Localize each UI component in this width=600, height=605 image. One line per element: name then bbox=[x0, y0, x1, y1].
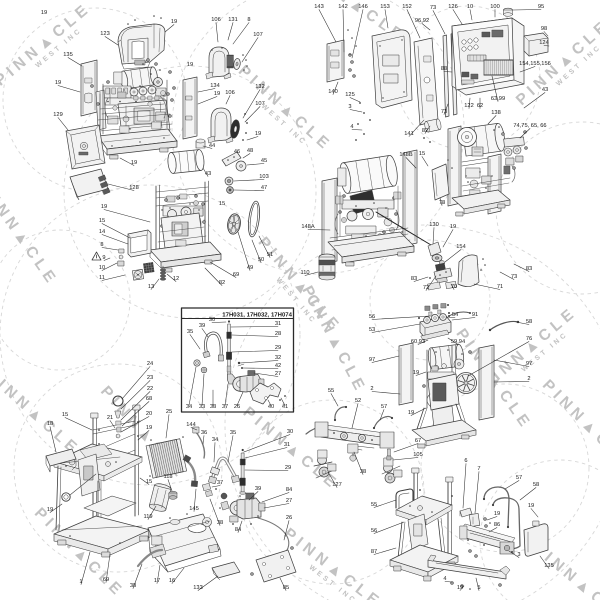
svg-text:3: 3 bbox=[348, 104, 351, 110]
svg-text:30: 30 bbox=[209, 317, 215, 323]
svg-text:37: 37 bbox=[222, 404, 228, 410]
svg-text:107: 107 bbox=[255, 101, 265, 107]
svg-text:22: 22 bbox=[147, 386, 153, 392]
svg-text:87: 87 bbox=[371, 549, 377, 555]
svg-text:28: 28 bbox=[275, 331, 281, 337]
svg-text:145: 145 bbox=[189, 506, 199, 512]
svg-text:84: 84 bbox=[286, 487, 292, 493]
svg-text:19: 19 bbox=[47, 507, 53, 513]
svg-text:57: 57 bbox=[381, 404, 387, 410]
svg-text:60,93: 60,93 bbox=[411, 339, 425, 345]
svg-text:9: 9 bbox=[102, 255, 105, 261]
svg-text:85: 85 bbox=[283, 585, 289, 591]
svg-text:8: 8 bbox=[100, 242, 103, 248]
svg-text:45: 45 bbox=[261, 158, 267, 164]
svg-text:42: 42 bbox=[275, 363, 281, 369]
svg-text:4: 4 bbox=[350, 124, 353, 130]
svg-text:31: 31 bbox=[284, 442, 290, 448]
svg-text:41: 41 bbox=[282, 404, 288, 410]
svg-text:86: 86 bbox=[494, 522, 500, 528]
svg-text:96,92: 96,92 bbox=[415, 18, 429, 24]
svg-text:38: 38 bbox=[217, 520, 223, 526]
svg-text:106: 106 bbox=[225, 90, 235, 96]
svg-text:123: 123 bbox=[100, 31, 110, 37]
svg-text:153: 153 bbox=[380, 4, 390, 10]
svg-text:24: 24 bbox=[147, 361, 153, 367]
svg-text:25: 25 bbox=[166, 409, 172, 415]
svg-text:40: 40 bbox=[268, 404, 274, 410]
svg-text:43: 43 bbox=[205, 171, 211, 177]
svg-text:58: 58 bbox=[533, 482, 539, 488]
svg-text:39: 39 bbox=[255, 486, 261, 492]
svg-text:72: 72 bbox=[423, 285, 429, 291]
svg-text:37: 37 bbox=[217, 480, 223, 486]
svg-text:83: 83 bbox=[411, 276, 417, 282]
svg-text:69: 69 bbox=[233, 272, 239, 278]
svg-text:142: 142 bbox=[338, 4, 348, 10]
svg-text:95: 95 bbox=[538, 4, 544, 10]
svg-text:141: 141 bbox=[404, 131, 414, 137]
svg-text:19: 19 bbox=[450, 224, 456, 230]
svg-text:7: 7 bbox=[477, 466, 480, 472]
svg-text:91: 91 bbox=[472, 312, 478, 318]
svg-text:15: 15 bbox=[146, 479, 152, 485]
svg-text:19: 19 bbox=[187, 62, 193, 68]
svg-text:17H031, 17H032, 17H074: 17H031, 17H032, 17H074 bbox=[222, 312, 292, 318]
svg-text:152: 152 bbox=[402, 4, 412, 10]
svg-text:124: 124 bbox=[539, 40, 549, 46]
svg-text:19: 19 bbox=[255, 131, 261, 137]
svg-text:43: 43 bbox=[542, 87, 548, 93]
svg-text:46: 46 bbox=[234, 149, 240, 155]
svg-text:48: 48 bbox=[247, 148, 253, 154]
svg-text:73: 73 bbox=[511, 274, 517, 280]
svg-text:19: 19 bbox=[101, 204, 107, 210]
svg-text:50: 50 bbox=[258, 257, 264, 263]
svg-text:19: 19 bbox=[214, 91, 220, 97]
svg-text:146: 146 bbox=[358, 4, 368, 10]
svg-text:34: 34 bbox=[212, 437, 218, 443]
svg-text:15: 15 bbox=[219, 201, 225, 207]
svg-text:27: 27 bbox=[275, 371, 281, 377]
svg-text:4: 4 bbox=[443, 576, 446, 582]
svg-text:88: 88 bbox=[441, 66, 447, 72]
svg-text:15: 15 bbox=[419, 151, 425, 157]
svg-text:135: 135 bbox=[544, 563, 554, 569]
svg-text:76: 76 bbox=[526, 336, 532, 342]
svg-text:84: 84 bbox=[235, 527, 241, 533]
svg-text:83: 83 bbox=[526, 266, 532, 272]
svg-text:71: 71 bbox=[497, 284, 503, 290]
svg-text:38: 38 bbox=[210, 404, 216, 410]
svg-text:19: 19 bbox=[171, 19, 177, 25]
svg-text:6: 6 bbox=[464, 458, 467, 464]
svg-text:19: 19 bbox=[41, 10, 47, 16]
svg-text:19: 19 bbox=[131, 160, 137, 166]
svg-text:106: 106 bbox=[211, 17, 221, 23]
svg-text:17: 17 bbox=[154, 578, 160, 584]
svg-text:38: 38 bbox=[360, 469, 366, 475]
svg-text:128: 128 bbox=[129, 185, 139, 191]
svg-text:97: 97 bbox=[526, 361, 532, 367]
svg-text:32: 32 bbox=[275, 355, 281, 361]
svg-text:39: 39 bbox=[199, 323, 205, 329]
svg-text:105: 105 bbox=[413, 452, 423, 458]
svg-text:148A: 148A bbox=[301, 224, 314, 230]
svg-text:14: 14 bbox=[99, 229, 105, 235]
svg-text:148B: 148B bbox=[399, 152, 412, 158]
svg-text:2: 2 bbox=[527, 376, 530, 382]
svg-text:127: 127 bbox=[332, 482, 342, 488]
svg-text:56: 56 bbox=[371, 528, 377, 534]
svg-text:82: 82 bbox=[219, 280, 225, 286]
svg-text:49: 49 bbox=[247, 265, 253, 271]
svg-text:2: 2 bbox=[370, 386, 373, 392]
svg-text:58: 58 bbox=[526, 319, 532, 325]
svg-text:26: 26 bbox=[234, 404, 240, 410]
svg-text:97: 97 bbox=[369, 357, 375, 363]
svg-text:35: 35 bbox=[187, 329, 193, 335]
svg-text:98: 98 bbox=[541, 26, 547, 32]
svg-text:125: 125 bbox=[345, 92, 355, 98]
svg-text:55: 55 bbox=[371, 502, 377, 508]
svg-text:19: 19 bbox=[55, 80, 61, 86]
svg-text:26: 26 bbox=[286, 515, 292, 521]
svg-text:20: 20 bbox=[146, 411, 152, 417]
svg-text:68: 68 bbox=[146, 396, 152, 402]
svg-text:51: 51 bbox=[267, 252, 273, 258]
svg-text:19: 19 bbox=[146, 425, 152, 431]
svg-text:44: 44 bbox=[209, 143, 215, 149]
svg-text:21: 21 bbox=[107, 415, 113, 421]
svg-text:126: 126 bbox=[448, 4, 458, 10]
svg-text:154,155,156: 154,155,156 bbox=[519, 61, 551, 67]
svg-text:52: 52 bbox=[355, 398, 361, 404]
svg-text:56: 56 bbox=[369, 314, 375, 320]
svg-text:29: 29 bbox=[285, 465, 291, 471]
svg-text:143: 143 bbox=[314, 4, 324, 10]
svg-text:15: 15 bbox=[99, 218, 105, 224]
svg-text:53: 53 bbox=[369, 327, 375, 333]
svg-text:131: 131 bbox=[228, 17, 238, 23]
svg-text:54: 54 bbox=[452, 312, 458, 318]
svg-text:12: 12 bbox=[173, 276, 179, 282]
svg-text:154: 154 bbox=[456, 244, 466, 250]
svg-text:59,94: 59,94 bbox=[451, 339, 465, 345]
svg-text:19: 19 bbox=[457, 585, 463, 591]
svg-text:107: 107 bbox=[253, 32, 263, 38]
svg-text:47: 47 bbox=[261, 185, 267, 191]
svg-text:122: 122 bbox=[464, 103, 474, 109]
svg-text:63,99: 63,99 bbox=[491, 96, 505, 102]
svg-text:1: 1 bbox=[79, 579, 82, 585]
svg-text:33: 33 bbox=[199, 404, 205, 410]
svg-text:69: 69 bbox=[103, 577, 109, 583]
svg-text:140: 140 bbox=[328, 89, 338, 95]
svg-text:70: 70 bbox=[451, 284, 457, 290]
svg-text:82: 82 bbox=[422, 128, 428, 134]
svg-text:103: 103 bbox=[259, 174, 269, 180]
svg-text:19: 19 bbox=[494, 511, 500, 517]
svg-text:119: 119 bbox=[143, 514, 152, 520]
svg-text:134: 134 bbox=[210, 83, 220, 89]
svg-text:100: 100 bbox=[490, 4, 500, 10]
svg-text:74,75, 65, 66: 74,75, 65, 66 bbox=[513, 123, 546, 129]
svg-text:29: 29 bbox=[275, 345, 281, 351]
svg-text:138: 138 bbox=[491, 110, 501, 116]
svg-text:10: 10 bbox=[467, 4, 473, 10]
svg-text:19: 19 bbox=[528, 503, 534, 509]
svg-text:16: 16 bbox=[169, 578, 175, 584]
svg-text:129: 129 bbox=[53, 112, 63, 118]
svg-text:3: 3 bbox=[517, 552, 520, 558]
svg-text:19: 19 bbox=[408, 410, 414, 416]
svg-text:35: 35 bbox=[230, 430, 236, 436]
svg-text:110: 110 bbox=[300, 270, 309, 276]
svg-text:10: 10 bbox=[99, 265, 105, 271]
svg-text:38: 38 bbox=[130, 583, 136, 589]
svg-text:8: 8 bbox=[247, 17, 250, 23]
svg-text:31: 31 bbox=[275, 321, 281, 327]
svg-text:67: 67 bbox=[415, 438, 421, 444]
svg-text:13: 13 bbox=[148, 284, 154, 290]
svg-text:135: 135 bbox=[63, 52, 73, 58]
svg-text:18: 18 bbox=[47, 421, 53, 427]
svg-text:30: 30 bbox=[287, 429, 293, 435]
svg-text:73: 73 bbox=[430, 5, 436, 11]
svg-text:62: 62 bbox=[477, 103, 483, 109]
svg-text:15: 15 bbox=[62, 412, 68, 418]
svg-text:19: 19 bbox=[413, 370, 419, 376]
svg-text:11: 11 bbox=[99, 275, 105, 281]
svg-text:5: 5 bbox=[477, 585, 480, 591]
svg-text:132: 132 bbox=[255, 84, 265, 90]
svg-text:130: 130 bbox=[429, 222, 439, 228]
svg-text:27: 27 bbox=[286, 498, 292, 504]
svg-text:36: 36 bbox=[201, 430, 207, 436]
svg-text:78: 78 bbox=[439, 200, 445, 206]
svg-text:34: 34 bbox=[186, 404, 192, 410]
svg-text:144: 144 bbox=[186, 422, 196, 428]
svg-text:23: 23 bbox=[147, 375, 153, 381]
svg-text:133: 133 bbox=[193, 585, 203, 591]
svg-text:57: 57 bbox=[516, 475, 522, 481]
svg-text:73: 73 bbox=[441, 109, 447, 115]
svg-text:118: 118 bbox=[163, 474, 172, 480]
svg-text:55: 55 bbox=[328, 388, 334, 394]
